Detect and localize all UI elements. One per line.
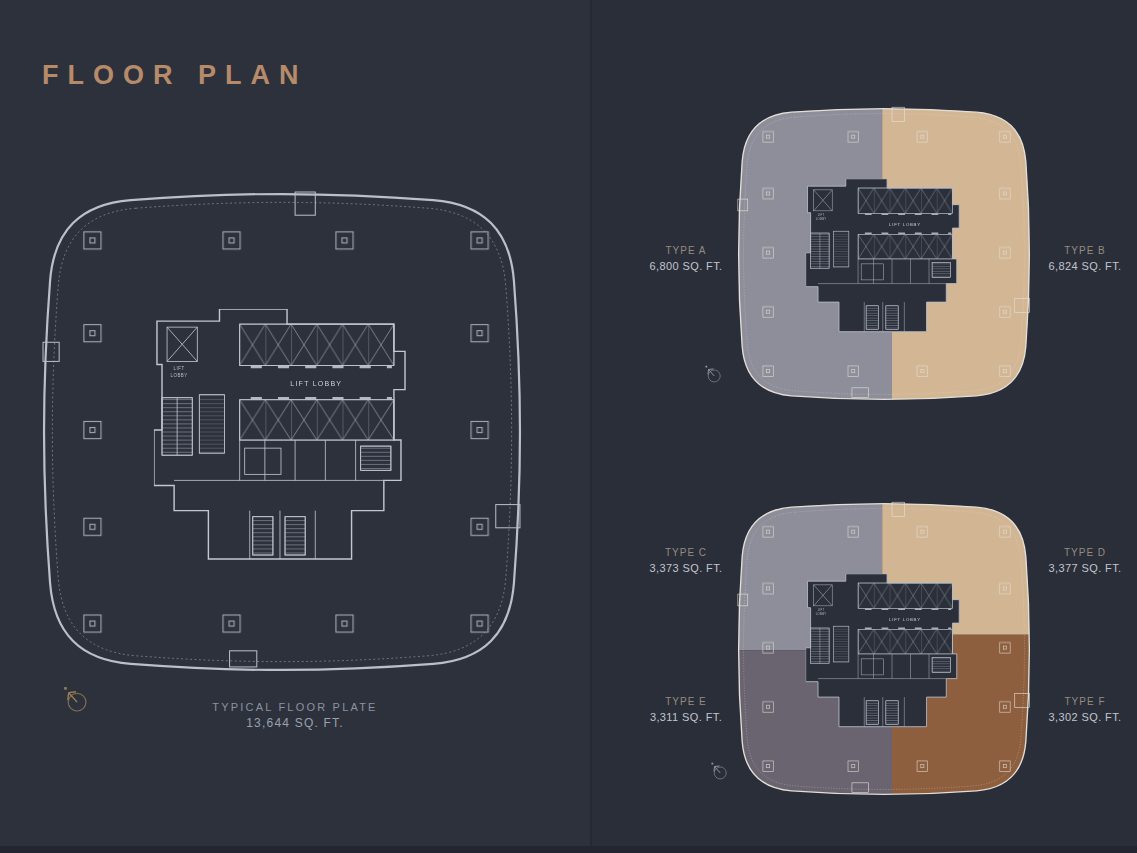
type-f-label: TYPE F 3,302 SQ. FT. bbox=[1034, 695, 1136, 724]
caption-line1: TYPICAL FLOOR PLATE bbox=[150, 701, 440, 713]
type-d-label: TYPE D 3,377 SQ. FT. bbox=[1034, 546, 1136, 575]
type-a-label: TYPE A 6,800 SQ. FT. bbox=[630, 244, 742, 273]
type-c-name: TYPE C bbox=[630, 546, 742, 560]
page-bottom-edge bbox=[0, 846, 1137, 853]
unit-plan-cdef bbox=[736, 501, 1032, 797]
type-a-area: 6,800 SQ. FT. bbox=[630, 259, 742, 273]
type-f-name: TYPE F bbox=[1034, 695, 1136, 709]
typical-floor-core bbox=[154, 309, 405, 559]
type-f-area: 3,302 SQ. FT. bbox=[1034, 710, 1136, 724]
page-title: FLOOR PLAN bbox=[42, 60, 308, 91]
type-b-name: TYPE B bbox=[1034, 244, 1136, 258]
typical-floor-plan bbox=[40, 190, 524, 674]
type-e-label: TYPE E 3,311 SQ. FT. bbox=[630, 695, 742, 724]
unit-plan-ab bbox=[736, 106, 1032, 402]
type-c-area: 3,373 SQ. FT. bbox=[630, 561, 742, 575]
type-a-name: TYPE A bbox=[630, 244, 742, 258]
typical-floor-caption: TYPICAL FLOOR PLATE 13,644 SQ. FT. bbox=[150, 701, 440, 730]
type-b-label: TYPE B 6,824 SQ. FT. bbox=[1034, 244, 1136, 273]
type-d-area: 3,377 SQ. FT. bbox=[1034, 561, 1136, 575]
north-arrow-icon bbox=[62, 686, 90, 714]
type-b-area: 6,824 SQ. FT. bbox=[1034, 259, 1136, 273]
type-d-name: TYPE D bbox=[1034, 546, 1136, 560]
type-e-area: 3,311 SQ. FT. bbox=[630, 710, 742, 724]
caption-line2: 13,644 SQ. FT. bbox=[150, 716, 440, 730]
page-seam bbox=[590, 0, 592, 853]
brochure-page: LIFT LOBBY LIFT LOBBY FLOOR PLAN TYPICAL… bbox=[0, 0, 1137, 853]
north-arrow-icon bbox=[704, 365, 723, 384]
type-e-name: TYPE E bbox=[630, 695, 742, 709]
type-c-label: TYPE C 3,373 SQ. FT. bbox=[630, 546, 742, 575]
north-arrow-icon bbox=[710, 762, 729, 781]
